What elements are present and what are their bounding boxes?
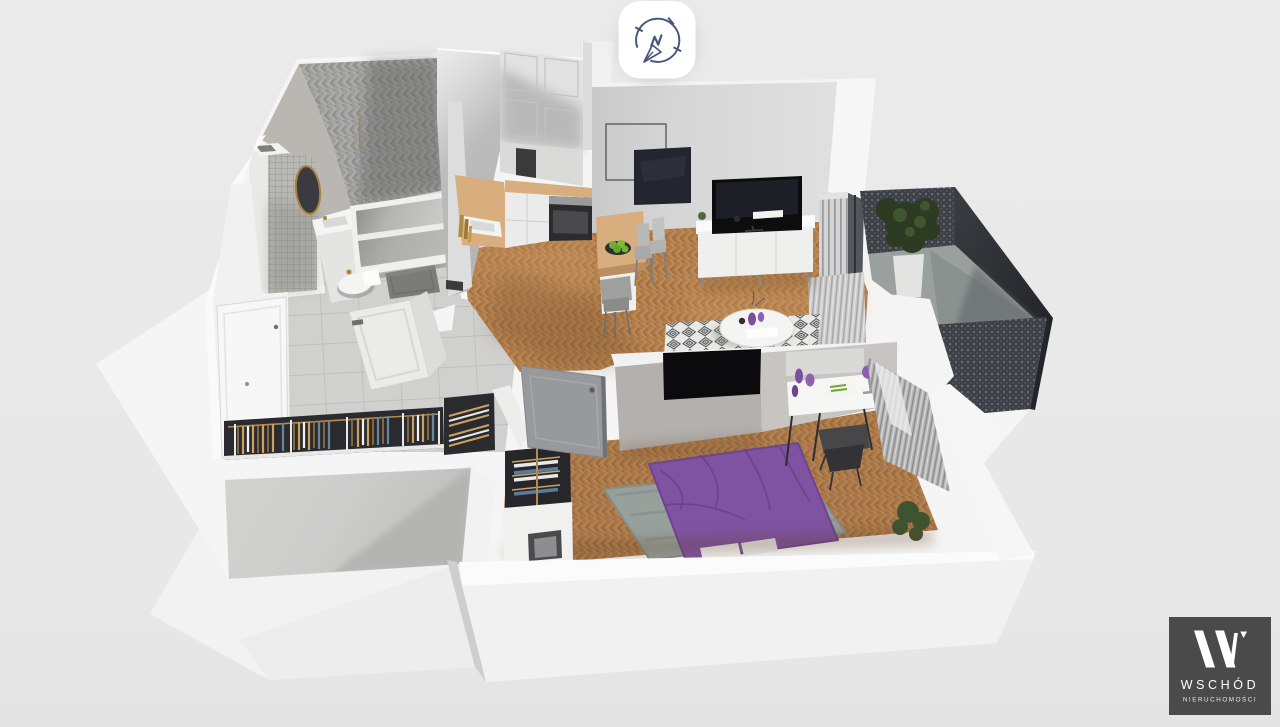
svg-text:WSCHÓD: WSCHÓD [1181, 677, 1260, 692]
svg-text:NIERUCHOMOŚCI: NIERUCHOMOŚCI [1183, 695, 1257, 704]
